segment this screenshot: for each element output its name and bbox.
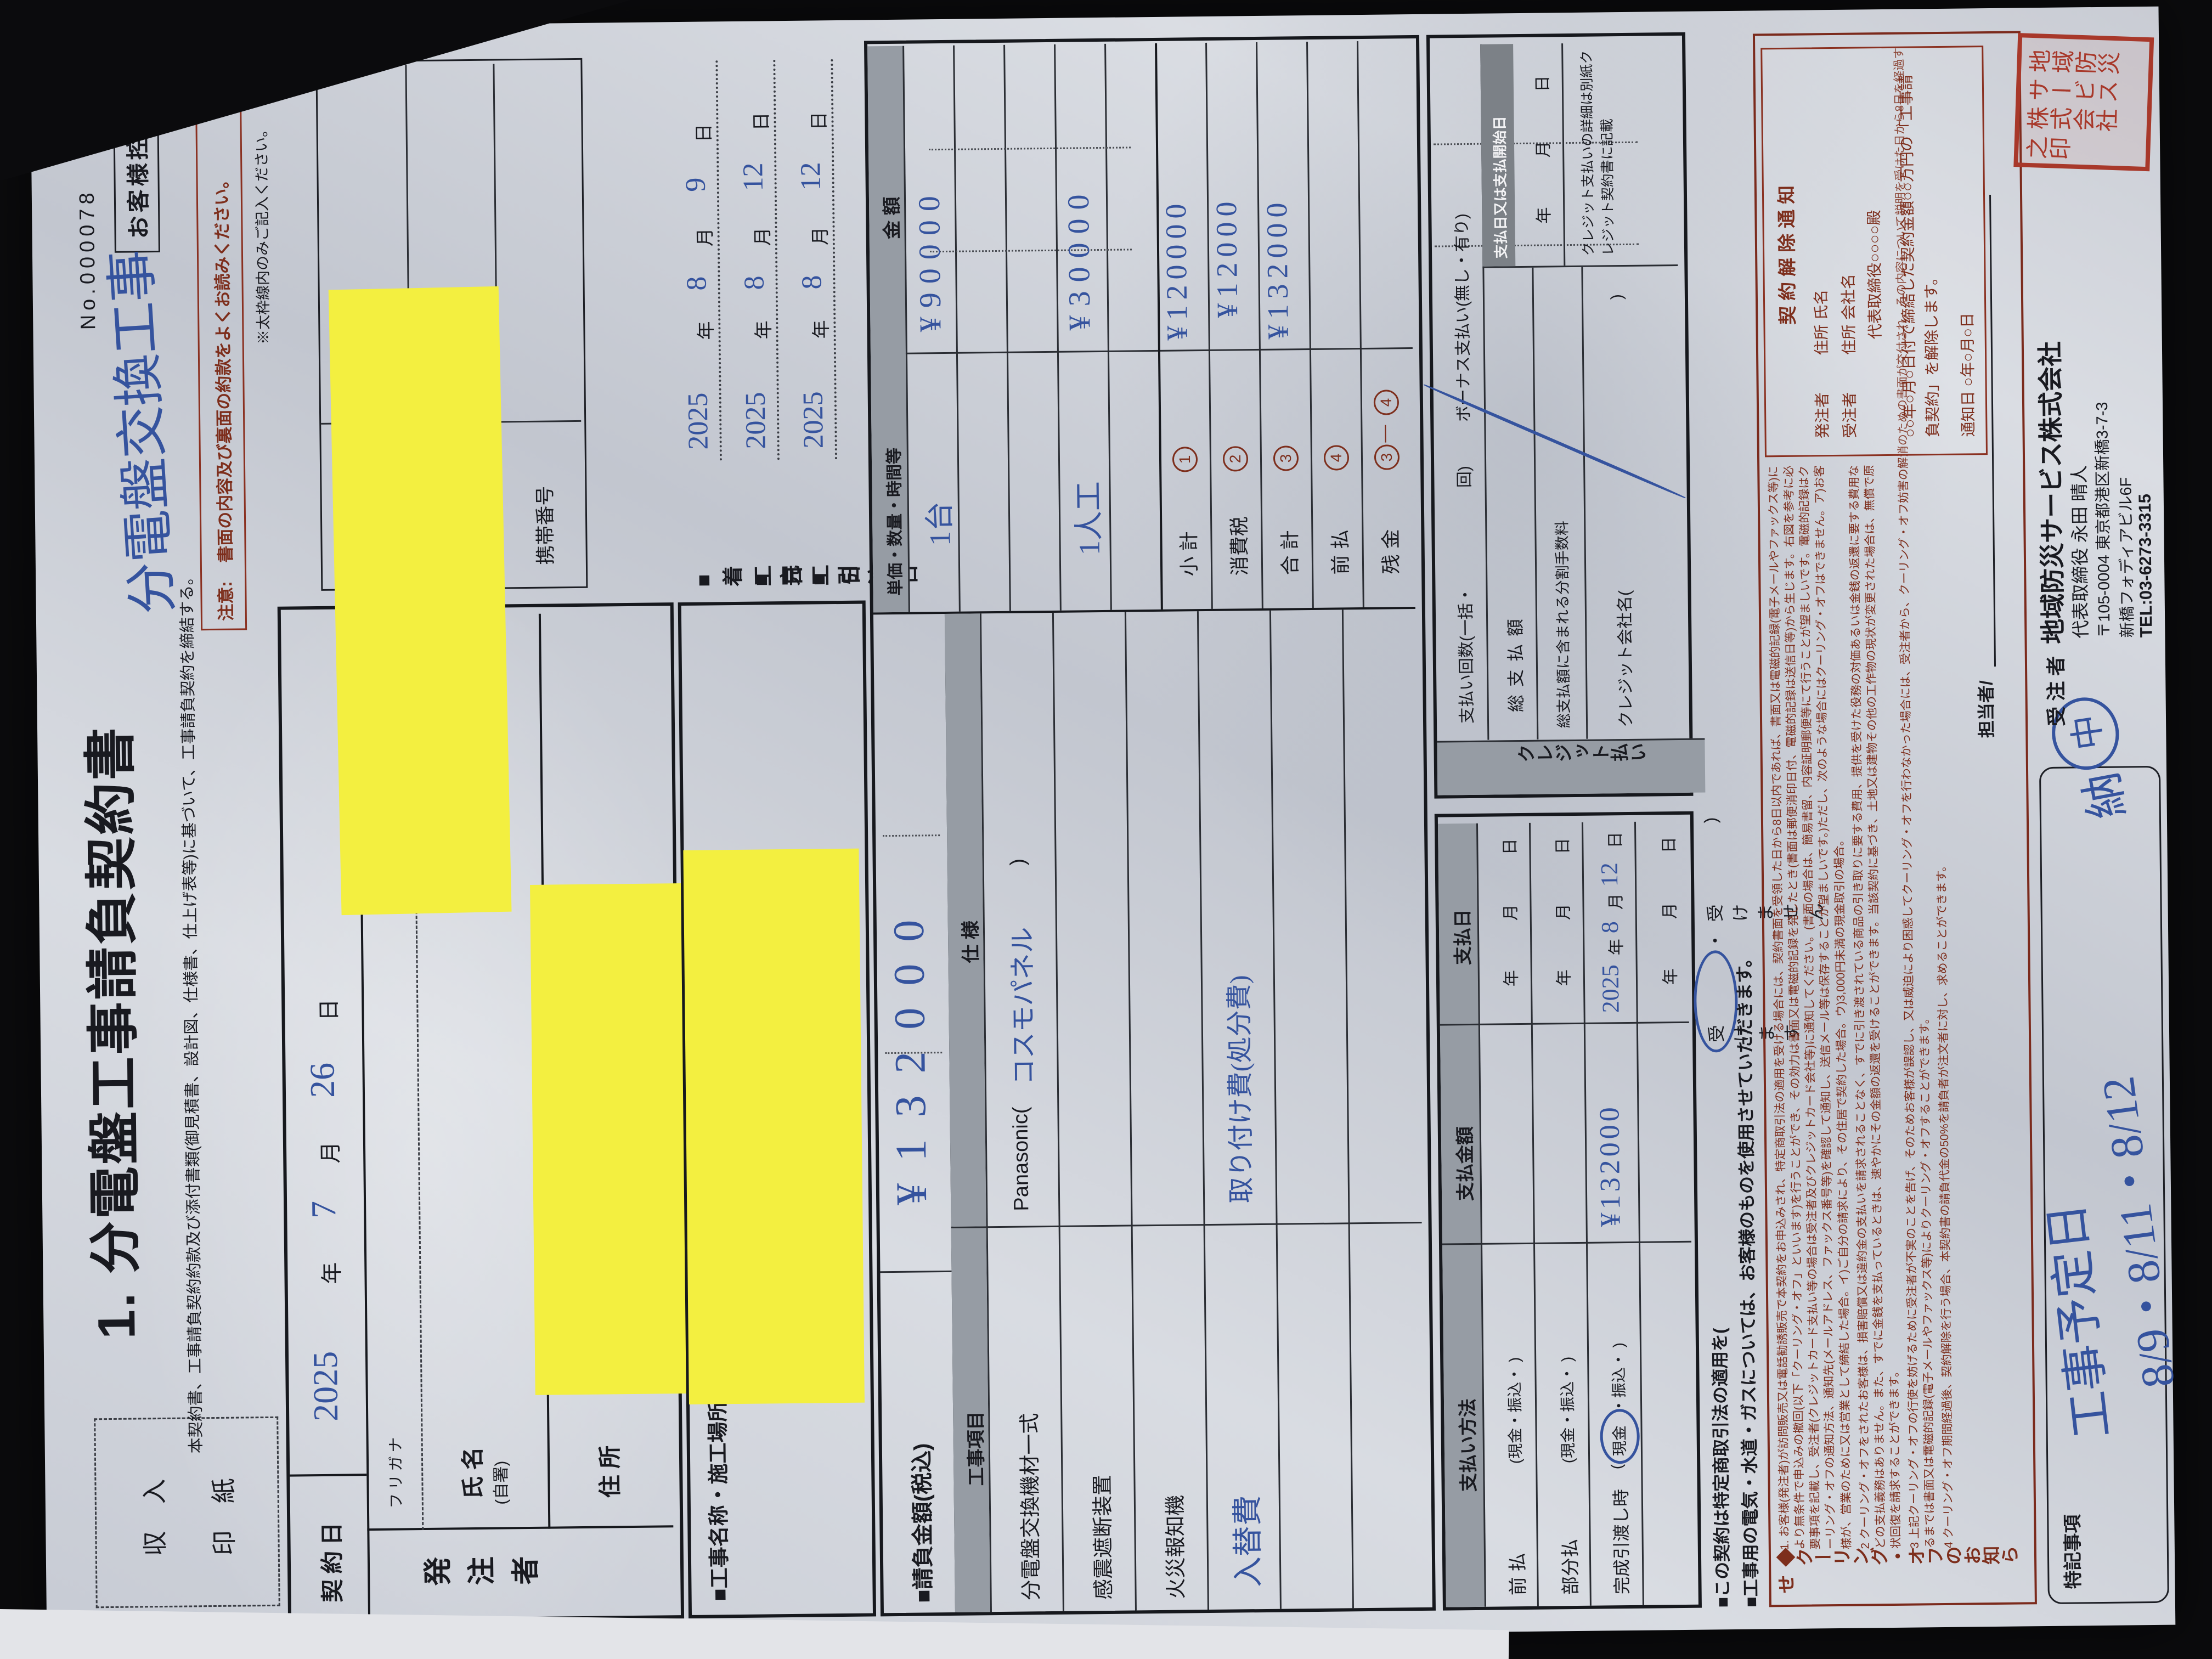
blank-month-2: 月	[1550, 904, 1574, 920]
unit-year: 年	[691, 321, 718, 340]
blank-day-2: 日	[1549, 838, 1573, 854]
contract-date-month: 7	[303, 1201, 344, 1219]
notice-prefix: 注意:	[212, 581, 237, 621]
credit-month: 月	[1530, 141, 1554, 157]
law-end: )	[1701, 817, 1721, 823]
company-seal: 地域防災 サービス 株式会社 之印	[2013, 33, 2154, 171]
cancellation-notice-sample: 契約解除通知 発注者 住所 氏名 受注者 住所 会社名 代表取締役○○○○殿 ○…	[1760, 46, 1988, 457]
cancel-title: 契約解除通知	[1770, 49, 1801, 455]
name-label: 氏 名	[454, 1447, 488, 1499]
day-unit: 日	[311, 999, 343, 1022]
credit-company-close: )	[1608, 294, 1627, 300]
sum-4-mark: 4	[1324, 445, 1349, 470]
utility-line: ■工事用の電気・水道・ガスについては、お客様のものを使用させていただきます。	[1730, 950, 1763, 1607]
sum-3-mark: 3	[1273, 445, 1299, 471]
item-2-name: 感震遮断装置	[1085, 1475, 1116, 1600]
document-title: 1. 分電盤工事請負契約書	[67, 725, 150, 1340]
items-table: ■請負金額(税込) ¥132000 工事項目 仕 様	[864, 35, 1436, 1616]
cancel-line1a: 発注者	[1814, 392, 1831, 438]
law-pre: ■この契約は特定商取引法の適用を(	[1706, 1328, 1734, 1607]
sum-2-mark: 2	[1223, 446, 1248, 471]
bonus-label: ボーナス支払い(無し・有り)	[1448, 213, 1474, 422]
payment-amount-header: 支払金額	[1450, 1126, 1477, 1201]
payment-date-year: 2025	[1596, 964, 1625, 1013]
payment-date-day: 12	[1595, 862, 1623, 887]
cancel-line2b: 住所 会社名	[1840, 274, 1858, 355]
cooling-off-box: ◆クーリング・オフのお知らせ 契約解除通知 発注者 住所 氏名 受注者 住所 会…	[1753, 31, 2037, 1607]
amount-4: ¥30000	[1061, 185, 1098, 331]
contract-date-day: 26	[302, 1063, 343, 1098]
unit-year: 年	[748, 320, 775, 340]
col-item-header: 工事項目	[961, 1411, 988, 1486]
handover-date-day: 12	[794, 162, 827, 191]
company-tel: TEL:03-6273-3315	[2135, 494, 2157, 637]
sum-5-dash: ―	[1374, 425, 1394, 442]
redaction-address	[530, 883, 689, 1395]
cancel-body: ○○年○月○日付で締結した契約金額○○万円の「工事請負契約」を解除します。	[1895, 64, 1945, 438]
prepay-label: 前 払	[1503, 1553, 1530, 1595]
sum-3-value: ¥132000	[1260, 197, 1295, 340]
stamp-line2: 印 紙	[203, 1419, 241, 1606]
contract-date-label: 契約日	[313, 1516, 348, 1602]
orderer-group-label: 発注者	[422, 1551, 664, 1595]
item-1-spec-close: )	[1007, 859, 1030, 866]
credit-year: 年	[1530, 207, 1554, 223]
sum-1-mark: 1	[1172, 447, 1198, 472]
credit-box: クレジット払い 支払い回数(一括・ 回) ボーナス支払い(無し・有り) 総支払額…	[1426, 32, 1694, 799]
installments-end: 回)	[1451, 466, 1475, 488]
unit-month: 月	[748, 227, 775, 246]
company-postal: 〒105-0004 東京都港区新橋3-7-3	[2089, 402, 2115, 638]
company-rep: 代表取締役 永田 晴人	[2064, 465, 2092, 639]
qty-1: 1台	[915, 501, 959, 546]
blank-year-4: 年	[1657, 968, 1681, 985]
payment-amount-value: ¥132000	[1593, 1104, 1627, 1227]
redaction-site	[683, 849, 865, 1404]
year-unit: 年	[314, 1262, 346, 1284]
contract-amount-cell: ¥132000	[873, 612, 952, 1273]
total-label: 総支払額	[1502, 611, 1528, 712]
blank-day-1: 日	[1496, 838, 1520, 855]
partial-paren: (現金・振込・ )	[1555, 1357, 1578, 1464]
finish-date-month: 8	[738, 275, 770, 290]
payment-date-header: 支払日	[1448, 909, 1475, 966]
notice-box: 注意: 書面の内容及び裏面の約款をよくお読みください。	[195, 61, 247, 630]
finish-date-day: 12	[737, 162, 770, 191]
payment-date-month-unit: 月	[1602, 893, 1626, 910]
col-qty-header: 単価・数量・時間等	[881, 448, 906, 596]
cancel-line1b: 住所 氏名	[1813, 289, 1830, 355]
clause-2: 2 クーリング・オフをされたお客様は、損害賠償又は違約金の支払いを請求されること…	[1847, 465, 1904, 1549]
credit-day: 日	[1529, 75, 1553, 92]
qty-4: 1人工	[1064, 481, 1108, 556]
cancel-date: 通知日 ○年○月○日	[1953, 64, 1979, 437]
payment-box: 支払い方法 支払金額 支払日 前 払 (現金・振込・ ) 部分払 (現金・振込・…	[1435, 811, 1702, 1611]
item-4-spec-handwritten: 取り付け費(処分費)	[1217, 975, 1258, 1204]
item-3-name: 火災報知機	[1158, 1494, 1189, 1599]
sum-5-mark1: 3	[1374, 444, 1400, 470]
start-date-day: 9	[680, 177, 712, 192]
sum-2-value: ¥12000	[1209, 196, 1244, 318]
payment-method-header: 支払い方法	[1453, 1398, 1481, 1492]
stamp-line1: 収 入	[134, 1419, 172, 1606]
item-4-name-handwritten: 入替費	[1223, 1495, 1268, 1588]
site-label: ■工事名称・施工場所	[701, 1401, 733, 1601]
photo-of-contract: 収 入 印 紙 1. 分電盤工事請負契約書 No.000078 お客様控 分電盤…	[0, 0, 2212, 1659]
name-sublabel: (自署)	[487, 1460, 512, 1504]
item-1-spec-handwritten: コスモパネル	[1001, 927, 1041, 1085]
sum-3-label: 合 計	[1274, 530, 1303, 575]
furigana-label: フリガナ	[384, 1434, 407, 1508]
start-date-year: 2025	[682, 392, 715, 450]
blank-day-4: 日	[1655, 837, 1679, 853]
item-1-spec-printed: Panasonic(	[1009, 1107, 1034, 1211]
contract-paper: 収 入 印 紙 1. 分電盤工事請負契約書 No.000078 お客様控 分電盤…	[30, 7, 2176, 1647]
sum-5-label: 残 金	[1375, 529, 1404, 574]
credit-note: クレジット支払いの詳細は別紙クレジット契約書に記載	[1577, 47, 1618, 256]
contract-amount-value: ¥132000	[884, 898, 937, 1205]
contract-amount-label: ■請負金額(税込)	[904, 1443, 938, 1602]
partial-label: 部分払	[1555, 1539, 1583, 1595]
contractor-label: 受 注 者	[2040, 656, 2069, 727]
installments-label: 支払い回数(一括・	[1452, 586, 1477, 724]
address-label: 住 所	[591, 1446, 625, 1498]
col-spec-header: 仕 様	[956, 921, 983, 963]
schedule-dates: ■着工日 2025 年 8 月 9 日 ■完工日 2025 年 8 月 12 日…	[680, 48, 861, 587]
unit-month: 月	[690, 228, 717, 247]
col-amount-header: 金 額	[877, 196, 904, 239]
blank-year-1: 年	[1498, 970, 1522, 986]
staff-label: 担当者/	[1972, 680, 1998, 738]
prepay-paren: (現金・振込・ )	[1503, 1357, 1526, 1464]
sum-5-mark2: 4	[1374, 390, 1399, 415]
company-name: 地域防災サービス株式会社	[2030, 341, 2070, 645]
blank-month-1: 月	[1497, 904, 1521, 921]
cancel-line3: 代表取締役○○○○殿	[1861, 65, 1886, 339]
payment-date-year-unit: 年	[1602, 939, 1627, 955]
credit-label: クレジット払い	[1437, 738, 1705, 795]
completion-paren-rest: ・振込・ )	[1607, 1342, 1629, 1414]
unit-day: 日	[804, 111, 831, 131]
item-1-name: 分電盤交換機材一式	[1012, 1413, 1045, 1601]
payment-date-month: 8	[1596, 921, 1624, 934]
cancel-line2a: 受注者	[1841, 392, 1859, 438]
seal-col-4: 之印	[2024, 132, 2072, 167]
amount-1: ¥90000	[912, 187, 949, 332]
finish-date-year: 2025	[740, 392, 772, 449]
unit-day: 日	[689, 123, 716, 143]
credit-company-label: クレジット会社名(	[1611, 590, 1637, 727]
company-building: 新橋フォディアビル6F	[2113, 477, 2137, 637]
unit-day: 日	[746, 112, 773, 131]
payment-date-day-unit: 日	[1601, 832, 1626, 848]
sum-1-label: 小 計	[1173, 531, 1202, 577]
frame-note: ※太枠線内のみご記入ください。	[249, 122, 273, 345]
sum-1-value: ¥120000	[1159, 198, 1194, 341]
month-unit: 月	[313, 1142, 345, 1164]
law-mid: ・	[1702, 932, 1727, 949]
blank-month-4: 月	[1656, 902, 1680, 919]
redaction-name	[329, 286, 512, 915]
handover-date-year: 2025	[797, 391, 830, 449]
sum-4-label: 前 払	[1324, 529, 1353, 575]
fee-label: 総支払額に含まれる分割手数料	[1550, 521, 1573, 728]
unit-year: 年	[806, 320, 833, 339]
cash-circled	[1600, 1409, 1640, 1464]
contract-date-year: 2025	[305, 1351, 346, 1422]
unit-month: 月	[805, 227, 832, 246]
special-notes-label: 特記事項	[2057, 1514, 2085, 1589]
completion-paren-open: (	[1608, 1464, 1626, 1470]
start-date-header: 支払日又は支払開始日	[1488, 116, 1510, 258]
completion-label: 完成引渡し時	[1607, 1489, 1634, 1594]
clause-1: 1. お客様(発注者)が訪問販売又は電話勧誘販売で本契約をお申込みされ、特定商取…	[1766, 465, 1854, 1550]
blank-year-2: 年	[1550, 969, 1575, 986]
notice-text: 書面の内容及び裏面の約款をよくお読みください。	[207, 172, 236, 563]
handover-date-month: 8	[795, 275, 828, 290]
start-date-month: 8	[680, 276, 713, 291]
mobile-label: 携帯番号	[529, 486, 558, 565]
sum-2-label: 消費税	[1223, 516, 1252, 576]
